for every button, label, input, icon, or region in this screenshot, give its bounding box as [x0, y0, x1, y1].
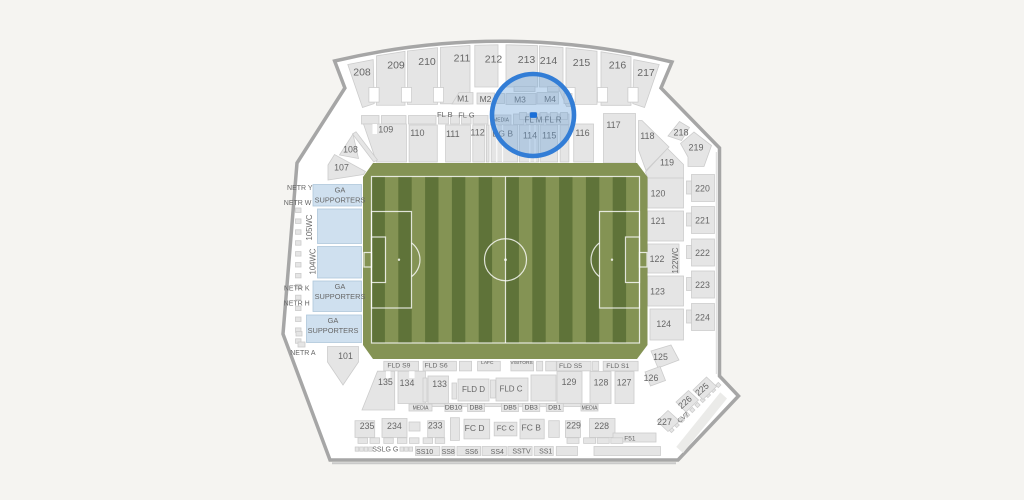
svg-text:211: 211	[454, 52, 471, 64]
svg-text:LAFC: LAFC	[481, 360, 494, 366]
svg-text:SS6: SS6	[465, 449, 478, 456]
svg-text:121: 121	[651, 216, 666, 226]
svg-text:DB10: DB10	[445, 405, 462, 412]
svg-text:MEDIA: MEDIA	[413, 406, 430, 412]
svg-text:235: 235	[360, 421, 375, 431]
svg-text:SS1: SS1	[539, 449, 552, 456]
svg-text:214: 214	[540, 55, 558, 67]
svg-text:FLD S9: FLD S9	[387, 363, 410, 370]
svg-text:217: 217	[637, 67, 655, 79]
svg-text:234: 234	[387, 421, 402, 431]
svg-text:210: 210	[418, 56, 436, 68]
svg-text:108: 108	[343, 144, 358, 154]
svg-text:213: 213	[518, 54, 536, 66]
svg-text:NETR W: NETR W	[284, 200, 312, 207]
svg-text:104WC: 104WC	[309, 248, 318, 274]
svg-text:222: 222	[695, 248, 710, 258]
svg-text:SSLG G: SSLG G	[372, 446, 398, 453]
svg-text:DB5: DB5	[503, 405, 516, 412]
svg-text:111: 111	[446, 129, 460, 139]
svg-text:DB1: DB1	[548, 405, 561, 412]
svg-text:216: 216	[609, 59, 627, 71]
svg-text:212: 212	[485, 53, 503, 65]
svg-text:MEDIA: MEDIA	[582, 406, 599, 412]
svg-text:FLD S6: FLD S6	[425, 363, 448, 370]
svg-text:135: 135	[378, 377, 393, 387]
svg-text:124: 124	[656, 319, 671, 329]
svg-text:101: 101	[338, 351, 353, 361]
svg-text:SSTV: SSTV	[512, 449, 531, 456]
svg-text:DB8: DB8	[469, 405, 482, 412]
svg-text:123: 123	[650, 286, 665, 296]
svg-text:107: 107	[334, 162, 349, 172]
svg-text:NETR H: NETR H	[284, 301, 310, 308]
svg-text:119: 119	[660, 158, 674, 168]
svg-text:FC D: FC D	[465, 423, 485, 433]
svg-text:129: 129	[562, 377, 577, 387]
svg-text:227: 227	[657, 417, 672, 427]
svg-text:GA: GA	[328, 316, 339, 325]
svg-text:221: 221	[695, 215, 710, 225]
svg-text:FLD D: FLD D	[462, 385, 485, 394]
svg-text:SS4: SS4	[491, 449, 504, 456]
svg-text:NETR Y: NETR Y	[287, 185, 313, 192]
svg-text:223: 223	[695, 280, 710, 290]
svg-text:109: 109	[378, 125, 393, 135]
svg-text:FLD S1: FLD S1	[606, 363, 629, 370]
svg-text:128: 128	[594, 378, 609, 388]
svg-text:134: 134	[400, 378, 415, 388]
svg-text:FC B: FC B	[522, 423, 542, 433]
svg-text:VISITORS: VISITORS	[510, 360, 532, 366]
svg-text:FLD S5: FLD S5	[559, 363, 582, 370]
svg-text:SS8: SS8	[442, 449, 455, 456]
svg-text:F51: F51	[624, 435, 636, 442]
svg-text:SUPPORTERS: SUPPORTERS	[315, 292, 366, 301]
svg-text:GA: GA	[335, 186, 346, 195]
svg-text:SUPPORTERS: SUPPORTERS	[315, 196, 366, 205]
svg-text:NETR K: NETR K	[284, 286, 310, 293]
svg-text:224: 224	[695, 312, 710, 322]
svg-text:DB3: DB3	[525, 405, 538, 412]
svg-text:FC C: FC C	[497, 424, 515, 433]
svg-text:133: 133	[432, 379, 447, 389]
svg-text:117: 117	[606, 120, 620, 130]
svg-text:122WC: 122WC	[671, 247, 680, 273]
svg-text:220: 220	[695, 183, 710, 193]
svg-text:110: 110	[410, 128, 424, 138]
svg-text:229: 229	[566, 421, 581, 431]
svg-text:FL G: FL G	[458, 111, 475, 120]
svg-text:M1: M1	[457, 93, 469, 103]
svg-text:218: 218	[673, 127, 688, 137]
svg-text:SS10: SS10	[416, 449, 433, 456]
svg-text:126: 126	[644, 373, 659, 383]
svg-text:208: 208	[353, 66, 371, 78]
svg-text:233: 233	[428, 421, 443, 431]
svg-text:209: 209	[387, 59, 405, 71]
svg-text:118: 118	[640, 131, 654, 141]
svg-text:NETR A: NETR A	[290, 350, 316, 357]
svg-text:105WC: 105WC	[305, 214, 314, 240]
svg-text:FLD C: FLD C	[499, 384, 522, 393]
svg-text:125: 125	[653, 352, 668, 362]
svg-text:127: 127	[617, 378, 632, 388]
svg-text:GA: GA	[335, 282, 346, 291]
svg-text:FL B: FL B	[437, 110, 453, 119]
svg-text:SUPPORTERS: SUPPORTERS	[308, 326, 359, 335]
svg-text:228: 228	[594, 421, 609, 431]
svg-text:122: 122	[650, 254, 665, 264]
svg-text:215: 215	[573, 57, 591, 69]
svg-text:112: 112	[470, 127, 484, 137]
svg-text:219: 219	[688, 143, 703, 153]
svg-text:M2: M2	[480, 94, 492, 104]
svg-text:120: 120	[651, 189, 666, 199]
svg-text:116: 116	[575, 128, 589, 138]
